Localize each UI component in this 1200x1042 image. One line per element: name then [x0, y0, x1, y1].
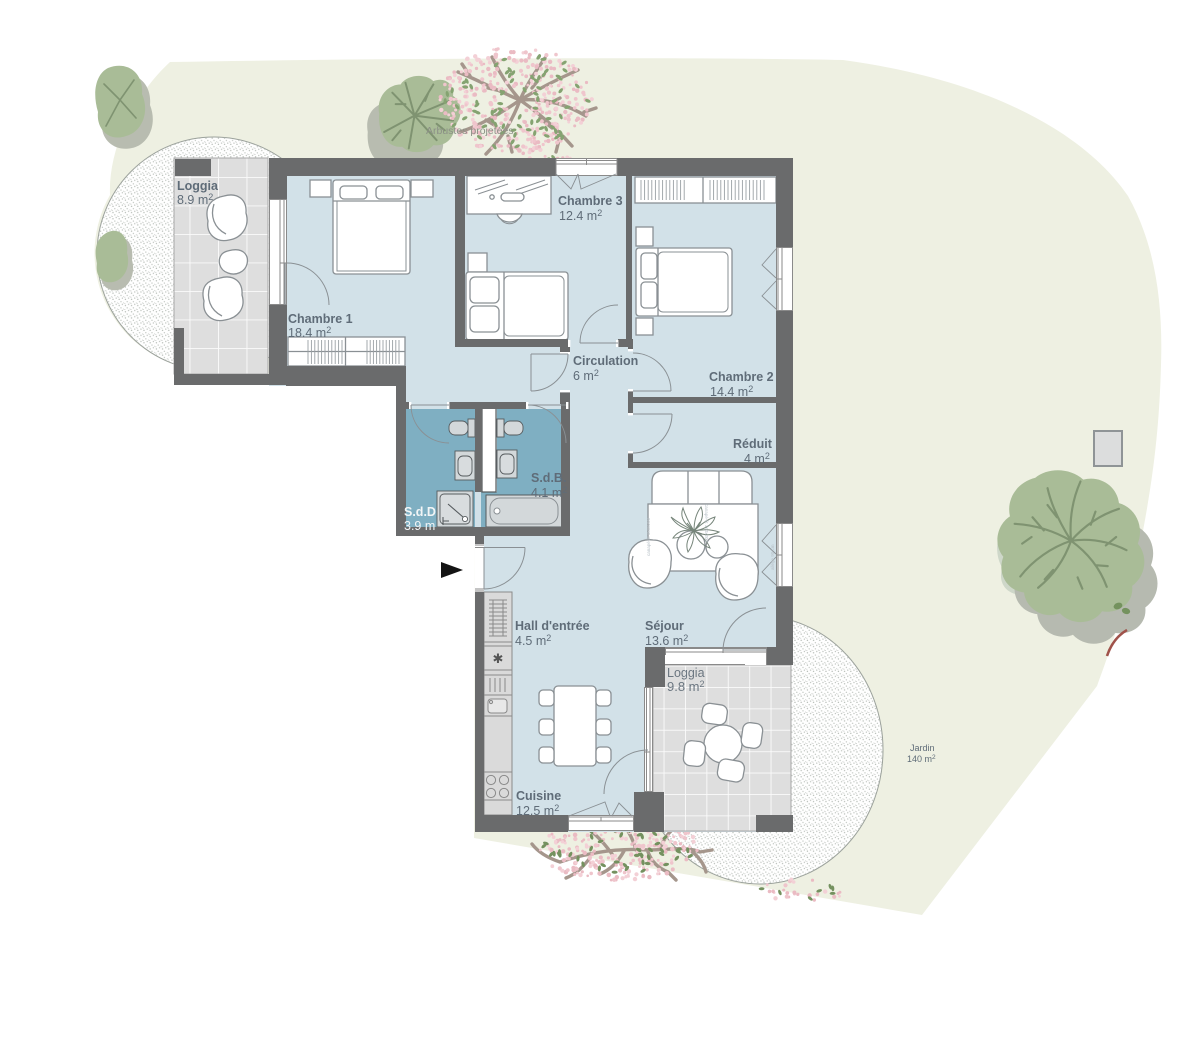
svg-text:✱: ✱: [493, 651, 504, 666]
svg-text:Loggia: Loggia: [667, 666, 705, 680]
svg-text:9.8 m2: 9.8 m2: [667, 679, 705, 694]
svg-text:Loggia: Loggia: [177, 179, 219, 193]
svg-text:Arbustes projetées: Arbustes projetées: [426, 125, 514, 137]
svg-text:Chambre 1: Chambre 1: [288, 312, 353, 326]
svg-text:140 m2: 140 m2: [907, 754, 936, 764]
svg-text:Chambre 3: Chambre 3: [558, 194, 623, 208]
svg-text:8.9 m2: 8.9 m2: [177, 192, 213, 207]
svg-text:Chambre 2: Chambre 2: [709, 370, 774, 384]
svg-text:canapé-lit 160x200: canapé-lit 160x200: [704, 504, 709, 543]
svg-text:Hall d'entrée: Hall d'entrée: [515, 619, 590, 633]
svg-text:Séjour: Séjour: [645, 619, 684, 633]
svg-text:Jardin: Jardin: [910, 743, 935, 753]
svg-text:3.9 m: 3.9 m: [404, 519, 435, 533]
svg-text:allège 90 cm: allège 90 cm: [770, 544, 775, 570]
svg-text:13.6 m2: 13.6 m2: [645, 633, 688, 648]
svg-text:Circulation: Circulation: [573, 354, 638, 368]
svg-text:Cuisine: Cuisine: [516, 789, 561, 803]
svg-text:S.d.D: S.d.D: [404, 505, 436, 519]
svg-text:12.4 m2: 12.4 m2: [559, 208, 602, 223]
svg-text:14.4 m2: 14.4 m2: [710, 384, 753, 399]
svg-text:canapé-lit 160x200: canapé-lit 160x200: [646, 517, 651, 556]
svg-text:Réduit: Réduit: [733, 437, 773, 451]
svg-text:4.1 m2: 4.1 m2: [531, 485, 567, 500]
svg-text:4.5 m2: 4.5 m2: [515, 633, 551, 648]
svg-text:18.4 m2: 18.4 m2: [288, 325, 331, 340]
svg-text:12.5 m2: 12.5 m2: [516, 803, 559, 818]
svg-text:S.d.B.: S.d.B.: [531, 471, 566, 485]
